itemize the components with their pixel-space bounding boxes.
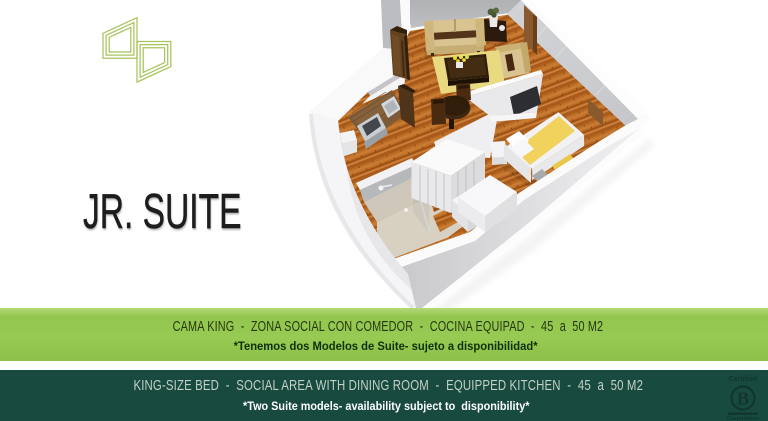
svg-text:Corporation: Corporation <box>727 416 760 421</box>
svg-text:B: B <box>737 389 749 409</box>
svg-text:Certified: Certified <box>729 376 757 383</box>
